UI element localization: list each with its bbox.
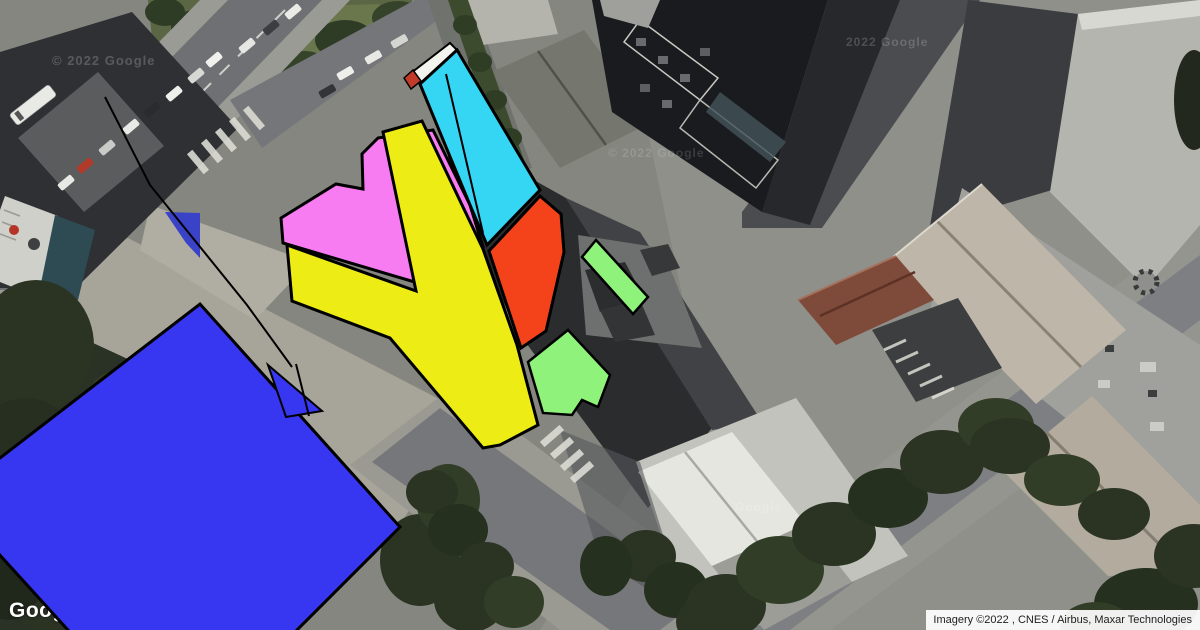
- parcel-green[interactable]: [528, 330, 610, 415]
- parcel-overlays: [0, 0, 1200, 630]
- imagery-attribution: Imagery ©2022 , CNES / Airbus, Maxar Tec…: [926, 610, 1200, 630]
- parcel-blue[interactable]: [0, 304, 400, 630]
- map-canvas[interactable]: © 2022 Google2022 Google© 2022 GoogleGoo…: [0, 0, 1200, 630]
- parcel-green-strip[interactable]: [582, 240, 648, 314]
